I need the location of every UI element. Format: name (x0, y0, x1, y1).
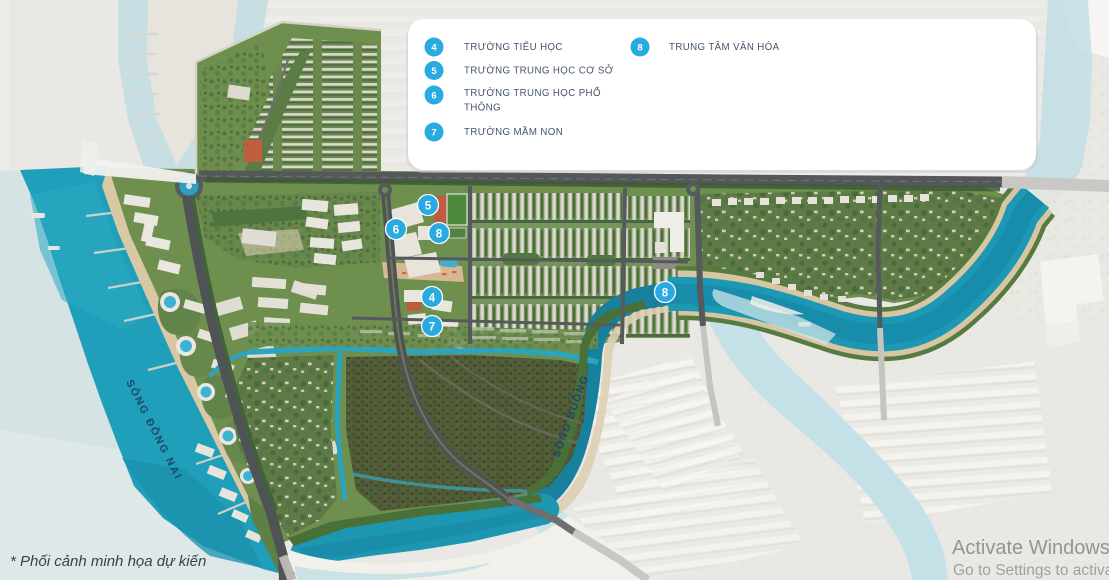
svg-text:Activate Windows: Activate Windows (952, 537, 1109, 559)
svg-text:* Phối cảnh minh họa dự kiến: * Phối cảnh minh họa dự kiến (10, 553, 206, 570)
svg-text:6: 6 (393, 225, 399, 237)
svg-text:TRƯỜNG TIỂU HỌC: TRƯỜNG TIỂU HỌC (464, 41, 563, 53)
svg-text:TRƯỜNG TRUNG HỌC PHỔ: TRƯỜNG TRUNG HỌC PHỔ (464, 87, 601, 99)
svg-text:4: 4 (431, 43, 437, 54)
svg-text:7: 7 (429, 322, 435, 334)
svg-text:8: 8 (436, 229, 443, 241)
svg-text:8: 8 (637, 43, 642, 54)
svg-text:TRUNG TÂM VĂN HÓA: TRUNG TÂM VĂN HÓA (669, 42, 780, 53)
svg-text:TRƯỜNG TRUNG HỌC CƠ SỞ: TRƯỜNG TRUNG HỌC CƠ SỞ (464, 65, 614, 77)
svg-text:4: 4 (429, 293, 436, 305)
svg-text:7: 7 (431, 128, 436, 139)
svg-text:5: 5 (431, 66, 437, 77)
svg-text:8: 8 (662, 288, 669, 300)
svg-text:TRƯỜNG MẦM NON: TRƯỜNG MẦM NON (464, 127, 563, 138)
svg-text:THÔNG: THÔNG (464, 103, 501, 114)
svg-text:6: 6 (431, 91, 436, 102)
svg-text:Go to Settings to activat: Go to Settings to activat (953, 562, 1109, 579)
svg-text:5: 5 (425, 201, 432, 213)
